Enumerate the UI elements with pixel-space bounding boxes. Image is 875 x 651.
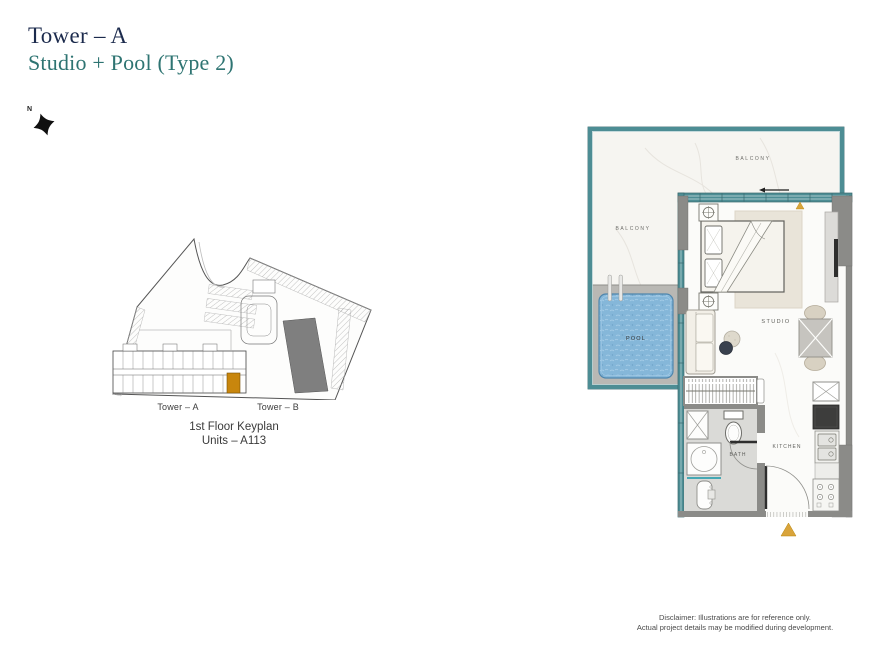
parking-rows-center bbox=[204, 285, 259, 329]
page-title: Tower – A bbox=[28, 22, 234, 49]
cooktop-sink bbox=[813, 479, 839, 511]
chair-bottom bbox=[805, 356, 826, 371]
wall-bottom-left bbox=[678, 511, 766, 517]
keyplan-svg bbox=[103, 232, 375, 400]
floorplan: POOL bbox=[575, 113, 865, 543]
wall-pier-lower bbox=[678, 288, 688, 314]
sofa bbox=[686, 310, 715, 374]
chair-top bbox=[805, 306, 826, 321]
pool-label: POOL bbox=[626, 336, 646, 342]
keyplan-map bbox=[103, 232, 375, 400]
amenity-building bbox=[253, 280, 275, 293]
keyplan-caption-line2: Units – A113 bbox=[134, 434, 334, 448]
balcony-top-label: BALCONY bbox=[735, 156, 770, 162]
north-indicator: N bbox=[27, 106, 61, 144]
wall-bottom-right bbox=[808, 511, 852, 517]
tower-a-building bbox=[113, 344, 246, 393]
kitchen-label: KITCHEN bbox=[773, 444, 802, 450]
nightstand-bottom bbox=[699, 293, 718, 310]
nightstand-top bbox=[699, 204, 718, 221]
pouf-dark bbox=[720, 342, 733, 355]
oven-unit bbox=[815, 431, 839, 463]
kitchen-counter bbox=[815, 463, 839, 479]
highlighted-unit bbox=[227, 373, 240, 393]
tv bbox=[834, 239, 838, 277]
shower-box bbox=[687, 411, 708, 439]
page-subtitle: Studio + Pool (Type 2) bbox=[28, 49, 234, 76]
balcony-left-label: BALCONY bbox=[615, 226, 650, 232]
closet-jamb bbox=[757, 379, 764, 403]
wall-closet-bath bbox=[684, 405, 757, 409]
keyplan-caption: 1st Floor Keyplan Units – A113 bbox=[134, 420, 334, 448]
kitchen-cabinet-x bbox=[813, 382, 839, 401]
closet bbox=[684, 377, 764, 405]
bath-label: BATH bbox=[730, 452, 747, 458]
media-unit bbox=[825, 212, 838, 302]
floorplan-svg: POOL bbox=[575, 113, 865, 543]
wall-bath-kitchen-lower bbox=[757, 463, 765, 511]
title-block: Tower – A Studio + Pool (Type 2) bbox=[28, 22, 234, 76]
wall-top bbox=[678, 193, 852, 202]
tower-b-label: Tower – B bbox=[238, 402, 318, 412]
disclaimer-line1: Disclaimer: Illustrations are for refere… bbox=[594, 613, 875, 623]
disclaimer: Disclaimer: Illustrations are for refere… bbox=[594, 613, 875, 633]
disclaimer-line2: Actual project details may be modified d… bbox=[594, 623, 875, 633]
brochure-page: { "page": { "title": "Tower – A", "subti… bbox=[0, 0, 875, 651]
wall-bath-kitchen-upper bbox=[757, 405, 765, 433]
tower-a-label: Tower – A bbox=[138, 402, 218, 412]
studio-label: STUDIO bbox=[761, 319, 790, 325]
toilet bbox=[724, 411, 743, 444]
keyplan-caption-line1: 1st Floor Keyplan bbox=[134, 420, 334, 434]
entry-marker-bottom bbox=[781, 523, 796, 536]
fridge bbox=[813, 405, 839, 429]
bathtub bbox=[687, 443, 721, 475]
compass-star-icon bbox=[27, 106, 61, 144]
wall-pier-upper bbox=[678, 196, 688, 250]
north-label: N bbox=[27, 106, 32, 113]
